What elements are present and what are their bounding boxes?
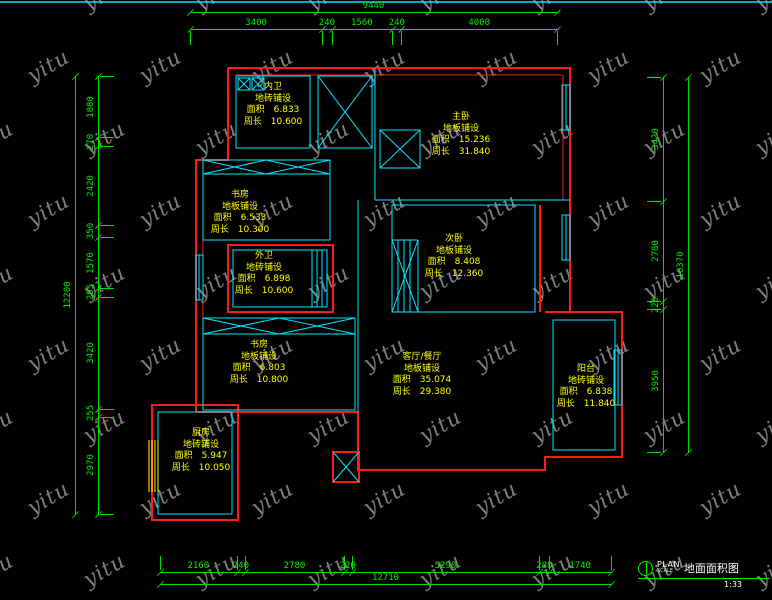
area-label: 面积 xyxy=(247,105,265,117)
dimension-label: 255 xyxy=(86,284,96,300)
area-label: 面积 xyxy=(175,451,193,463)
dimension-line xyxy=(75,76,76,514)
dimension-label: 2420 xyxy=(86,175,96,197)
dimension-label: 350 xyxy=(86,223,96,239)
drawing-scale: 1:33 xyxy=(638,580,770,589)
area-value: 8.408 xyxy=(455,257,481,269)
area-value: 6.898 xyxy=(265,274,291,286)
dimension-label: 220 xyxy=(340,561,356,571)
area-value: 35.074 xyxy=(420,375,452,387)
perimeter-value: 29.380 xyxy=(420,387,452,399)
dimension-label: 280 xyxy=(536,561,552,571)
perimeter-label: 周长 xyxy=(432,147,450,159)
perimeter-label: 周长 xyxy=(557,399,575,411)
perimeter-value: 10.800 xyxy=(257,375,289,387)
area-value: 6.533 xyxy=(241,213,267,225)
dimension-label: 1740 xyxy=(569,561,591,571)
dimension-line xyxy=(190,12,557,13)
dimension-extension xyxy=(100,76,114,77)
room-label: 外卫 地砖铺设 面积6.898 周长10.600 xyxy=(220,251,308,297)
area-label: 面积 xyxy=(233,363,251,375)
dimension-label: 1570 xyxy=(86,252,96,274)
perimeter-value: 11.840 xyxy=(584,399,616,411)
perimeter-value: 10.300 xyxy=(238,225,270,237)
area-label: 面积 xyxy=(432,135,450,147)
dimension-extension xyxy=(100,288,114,289)
dimension-extension xyxy=(190,31,191,45)
room-name: 客厅/餐厅 xyxy=(370,352,474,364)
dimension-extension xyxy=(100,146,114,147)
area-value: 6.833 xyxy=(274,105,300,117)
dimension-extension xyxy=(647,201,661,202)
dimension-extension xyxy=(647,452,661,453)
dimension-label: 2780 xyxy=(284,561,306,571)
dimension-extension xyxy=(557,31,558,45)
perimeter-value: 10.600 xyxy=(262,286,294,298)
room-label: 书房 地板铺设 面积6.533 周长10.300 xyxy=(194,190,286,236)
room-finish: 地砖铺设 xyxy=(231,94,315,106)
dimension-extension xyxy=(100,297,114,298)
dimension-label: 240 xyxy=(233,561,249,571)
perimeter-label: 周长 xyxy=(230,375,248,387)
dimension-label: 1560 xyxy=(351,18,373,28)
area-label: 面积 xyxy=(428,257,446,269)
area-value: 6.803 xyxy=(260,363,286,375)
area-label: 面积 xyxy=(393,375,411,387)
room-name: 外卫 xyxy=(220,251,308,263)
area-label: 面积 xyxy=(560,387,578,399)
dimension-extension xyxy=(322,31,323,45)
dimension-label: 1880 xyxy=(86,96,96,118)
dimension-label: 5290 xyxy=(435,561,457,571)
title-divider xyxy=(638,578,770,579)
dimension-extension xyxy=(332,31,333,45)
dimension-extension xyxy=(160,556,161,570)
perimeter-label: 周长 xyxy=(393,387,411,399)
dimension-label: 3420 xyxy=(651,128,661,150)
area-label: 面积 xyxy=(238,274,256,286)
room-label: 次卧 地板铺设 面积8.408 周长12.360 xyxy=(406,234,502,280)
room-label: 书房 地板铺设 面积6.803 周长10.800 xyxy=(213,340,305,386)
dimension-extension xyxy=(611,556,612,570)
drawing-name: 地面面积图 xyxy=(684,560,739,576)
dimension-label: 240 xyxy=(319,18,335,28)
dimension-extension xyxy=(100,237,114,238)
room-name: 书房 xyxy=(194,190,286,202)
dimension-label: 2970 xyxy=(86,455,96,477)
cad-canvas[interactable]: yituyituyituyituyituyituyituyituyituyitu… xyxy=(0,0,772,600)
scale-label: SCALE xyxy=(657,568,680,575)
room-label: 客厅/餐厅 地板铺设 面积35.074 周长29.380 xyxy=(370,352,474,398)
room-label: 厨房 地砖铺设 面积5.947 周长10.050 xyxy=(156,428,246,474)
dimension-extension xyxy=(100,225,114,226)
area-value: 15.236 xyxy=(459,135,491,147)
room-finish: 地板铺设 xyxy=(413,124,509,136)
room-name: 内卫 xyxy=(231,82,315,94)
room-name: 书房 xyxy=(213,340,305,352)
dimension-label: 3950 xyxy=(651,370,661,392)
area-value: 6.838 xyxy=(587,387,613,399)
dimension-line xyxy=(190,29,557,30)
area-label: 面积 xyxy=(214,213,232,225)
dimension-total-label: 12200 xyxy=(63,281,73,308)
dimension-line xyxy=(663,77,664,452)
room-finish: 地板铺设 xyxy=(213,352,305,364)
room-label: 内卫 地砖铺设 面积6.833 周长10.600 xyxy=(231,82,315,128)
dimension-label: 3420 xyxy=(86,342,96,364)
dimension-extension xyxy=(100,409,114,410)
dimension-line xyxy=(160,584,611,585)
area-value: 5.947 xyxy=(202,451,228,463)
dimension-extension xyxy=(401,31,402,45)
dimension-extension xyxy=(100,514,114,515)
dimension-extension xyxy=(100,137,114,138)
dimension-label: 3400 xyxy=(245,18,267,28)
room-finish: 地砖铺设 xyxy=(156,440,246,452)
room-label: 阳台 地砖铺设 面积6.838 周长11.840 xyxy=(541,364,631,410)
perimeter-value: 12.360 xyxy=(452,269,484,281)
room-finish: 地板铺设 xyxy=(370,364,474,376)
dimension-line xyxy=(688,77,689,452)
perimeter-label: 周长 xyxy=(235,286,253,298)
dimension-label: 2780 xyxy=(651,240,661,262)
plan-label: PLAN xyxy=(657,561,680,568)
room-finish: 地板铺设 xyxy=(406,246,502,258)
room-label: 主卧 地板铺设 面积15.236 周长31.840 xyxy=(413,112,509,158)
title-block: PLAN SCALE 地面面积图 1:33 xyxy=(638,560,770,589)
room-name: 次卧 xyxy=(406,234,502,246)
dimension-extension xyxy=(100,417,114,418)
room-name: 阳台 xyxy=(541,364,631,376)
dimension-label: 4000 xyxy=(468,18,490,28)
dimension-extension xyxy=(647,77,661,78)
perimeter-label: 周长 xyxy=(172,463,190,475)
dimension-label: 240 xyxy=(389,18,405,28)
perimeter-value: 10.600 xyxy=(271,117,303,129)
perimeter-label: 周长 xyxy=(244,117,262,129)
dimension-label: 270 xyxy=(86,134,96,150)
dimension-label: 2160 xyxy=(187,561,209,571)
dimension-label: 220 xyxy=(651,297,661,313)
dimension-total-label: 12710 xyxy=(372,573,399,583)
dimension-extension xyxy=(392,31,393,45)
dimension-label: 255 xyxy=(86,405,96,421)
detail-bubble-icon xyxy=(638,561,653,576)
room-finish: 地砖铺设 xyxy=(541,376,631,388)
perimeter-label: 周长 xyxy=(211,225,229,237)
room-finish: 地板铺设 xyxy=(194,202,286,214)
dimension-total-label: 9440 xyxy=(363,1,385,11)
perimeter-value: 31.840 xyxy=(459,147,491,159)
dimension-total-label: 10370 xyxy=(676,251,686,278)
room-name: 主卧 xyxy=(413,112,509,124)
room-finish: 地砖铺设 xyxy=(220,263,308,275)
room-name: 厨房 xyxy=(156,428,246,440)
perimeter-label: 周长 xyxy=(425,269,443,281)
perimeter-value: 10.050 xyxy=(199,463,231,475)
